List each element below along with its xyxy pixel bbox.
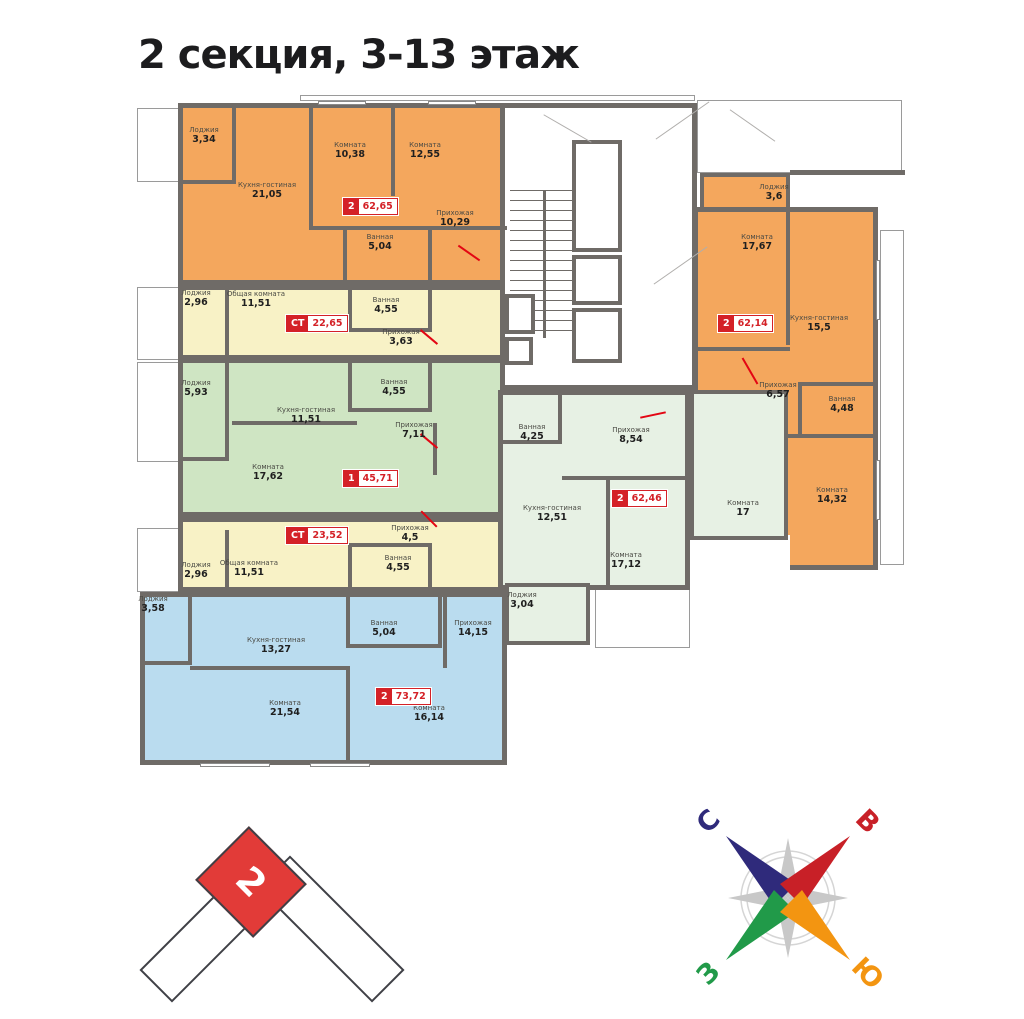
unit-badge-62-65[interactable]: 262,65 <box>343 198 398 215</box>
room-label: Комната10,38 <box>334 141 366 161</box>
wall-segment <box>788 434 878 438</box>
room-label: Комната21,54 <box>269 699 301 719</box>
room-label: Общая комната11,51 <box>227 290 285 310</box>
unit-badge-62-14[interactable]: 262,14 <box>718 315 773 332</box>
room-label: Лоджия3,58 <box>138 595 167 615</box>
room-label: Лоджия2,96 <box>181 561 210 581</box>
wall-segment <box>428 230 432 285</box>
wall-segment <box>140 661 192 665</box>
wall-segment <box>346 644 442 648</box>
wall-segment <box>562 476 688 480</box>
north-label: С <box>691 804 727 840</box>
unit-badge-22-65[interactable]: СТ22,65 <box>286 315 348 332</box>
wall-segment <box>225 362 229 461</box>
wall-segment <box>309 103 313 230</box>
unit-badge-73-72[interactable]: 273,72 <box>376 688 431 705</box>
room-label: Лоджия5,93 <box>181 379 210 399</box>
room-label: Прихожая8,54 <box>612 426 650 446</box>
south-label: Ю <box>845 951 889 995</box>
room-label: Комната17 <box>727 499 759 519</box>
section-2-label: 2 <box>228 859 275 906</box>
wall-segment <box>438 595 442 648</box>
building-locator: 2 <box>130 818 415 983</box>
room-label: Кухня-гостиная11,51 <box>277 406 335 426</box>
unit-badge-45-71[interactable]: 145,71 <box>343 470 398 487</box>
room-label: Комната17,12 <box>610 551 642 571</box>
parapet-line <box>137 108 179 182</box>
apartment-2room-73-72[interactable] <box>140 592 507 765</box>
elevator-shaft <box>572 255 622 305</box>
wall-segment <box>428 358 432 412</box>
wall-segment <box>346 595 350 648</box>
elevator-shaft <box>572 308 622 363</box>
window <box>428 101 476 105</box>
east-label: В <box>849 803 885 839</box>
vestibule-outline <box>697 100 902 173</box>
room-label: Прихожая7,11 <box>395 421 433 441</box>
wall-segment <box>232 108 236 182</box>
room-label: Лоджия2,96 <box>181 289 210 309</box>
room-label: Ванная4,55 <box>373 296 400 316</box>
room-label: Ванная4,55 <box>381 378 408 398</box>
elevator-shaft <box>572 140 622 252</box>
wall-segment <box>428 287 432 332</box>
window <box>876 460 880 520</box>
room-label: Прихожая10,29 <box>436 209 474 229</box>
parapet-line <box>137 287 179 360</box>
room-label: Комната17,67 <box>741 233 773 253</box>
wall-segment <box>178 180 236 184</box>
room-label: Ванная4,55 <box>385 554 412 574</box>
window <box>310 763 370 767</box>
wall-segment <box>190 666 350 670</box>
wall-segment <box>346 670 350 763</box>
room-label: Комната14,32 <box>816 486 848 506</box>
wall-segment <box>606 480 610 588</box>
wall-segment <box>188 592 192 665</box>
room-label: Ванная4,48 <box>829 395 856 415</box>
unit-badge-62-46[interactable]: 262,46 <box>612 490 667 507</box>
wall-segment <box>790 170 905 175</box>
compass-rose: С В З Ю <box>685 800 895 995</box>
utility-shaft <box>505 294 535 334</box>
room-label: Лоджия3,34 <box>189 126 218 146</box>
wall-segment <box>178 457 229 461</box>
room-label: Кухня-гостиная13,27 <box>247 636 305 656</box>
room-label: Комната16,14 <box>413 704 445 724</box>
wall-segment <box>693 347 790 351</box>
wall-segment <box>348 358 352 412</box>
stair-divider <box>543 190 546 338</box>
wall-segment <box>343 230 347 285</box>
room-label: Прихожая3,63 <box>382 328 420 348</box>
stairwell-core <box>500 103 697 390</box>
wall-segment <box>558 392 562 444</box>
window <box>876 260 880 320</box>
page-title: 2 секция, 3-13 этаж <box>138 32 579 78</box>
room-label: Комната12,55 <box>409 141 441 161</box>
room-label: Лоджия3,6 <box>759 183 788 203</box>
room-label: Лоджия3,04 <box>507 591 536 611</box>
exterior-gap <box>690 535 790 570</box>
window <box>200 763 270 767</box>
wall-segment <box>800 382 878 386</box>
west-label: З <box>691 956 726 991</box>
room-label: Общая комната11,51 <box>220 559 278 579</box>
unit-badge-23-52[interactable]: СТ23,52 <box>286 527 348 544</box>
room-label: Кухня-гостиная21,05 <box>238 181 296 201</box>
room-label: Прихожая14,15 <box>454 619 492 639</box>
floor-plan: Лоджия3,34 Комната10,38 Комната12,55 Кух… <box>135 95 915 773</box>
parapet-line <box>137 362 179 462</box>
parapet-line <box>880 230 904 565</box>
wall-segment <box>391 103 395 196</box>
room-label: Прихожая6,57 <box>759 381 797 401</box>
parapet-line <box>137 528 179 592</box>
room-label: Ванная4,25 <box>519 423 546 443</box>
wall-segment <box>348 543 352 592</box>
room-label: Прихожая4,5 <box>391 524 429 544</box>
room-label: Ванная5,04 <box>367 233 394 253</box>
wall-segment <box>348 408 432 412</box>
utility-shaft <box>505 337 533 365</box>
room-label: Кухня-гостиная15,5 <box>790 314 848 334</box>
balcony-outline <box>595 588 690 648</box>
wall-segment <box>311 226 507 230</box>
room-label: Кухня-гостиная12,51 <box>523 504 581 524</box>
room-label: Ванная5,04 <box>371 619 398 639</box>
wall-segment <box>443 592 447 668</box>
window <box>318 101 366 105</box>
wall-segment <box>428 543 432 592</box>
wall-segment <box>348 287 352 332</box>
room-label: Комната17,62 <box>252 463 284 483</box>
wall-segment <box>798 382 802 438</box>
